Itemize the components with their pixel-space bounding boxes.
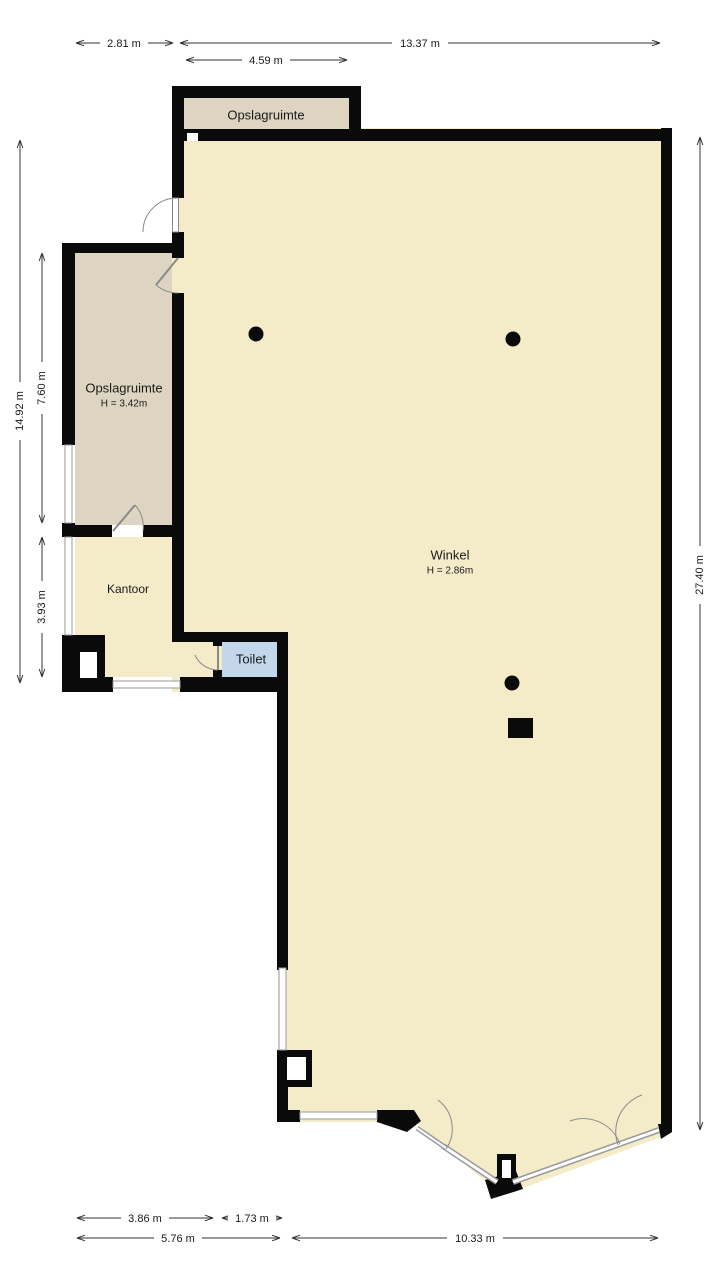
dimension-label: 10.33 m — [455, 1233, 495, 1245]
wall-outer-left-upper — [62, 243, 75, 445]
toproom-notch — [187, 133, 198, 141]
room-label-storage-top: Opslagruimte — [227, 107, 304, 122]
door-arc-exterior-left — [143, 198, 177, 232]
wall-winkel-top — [172, 129, 672, 141]
wall-storage-bottom-right — [143, 525, 184, 537]
dimension-label: 1.73 m — [235, 1213, 269, 1225]
wall-toilet-right — [277, 632, 288, 692]
window-kantoor-bottom — [113, 681, 180, 688]
room-label-kantoor: Kantoor — [107, 582, 149, 596]
window-winkel-bottom — [300, 1112, 377, 1119]
dimension-label: 5.76 m — [161, 1233, 195, 1245]
wall-kantoor-bottom-left — [62, 677, 113, 692]
dimension-label: 3.86 m — [128, 1213, 162, 1225]
dimension-label: 7.60 m — [36, 371, 48, 405]
column-square — [508, 718, 533, 738]
window-winkel-left — [279, 968, 286, 1050]
pier-inset — [287, 1057, 306, 1080]
room-fills — [75, 98, 672, 1191]
wall-left-shared — [172, 293, 184, 632]
room-label-storage-left-height: H = 3.42m — [101, 399, 147, 410]
dimension-label: 4.59 m — [249, 55, 283, 67]
wall-winkel-bottom-corner — [278, 1110, 300, 1122]
dimension-label: 2.81 m — [107, 38, 141, 50]
dimension-label: 13.37 m — [400, 38, 440, 50]
column-dot — [249, 327, 264, 342]
wall-kantoor-bottom-right — [180, 677, 288, 692]
window-storage-left — [65, 445, 72, 523]
window-kantoor-left — [65, 537, 72, 635]
room-label-winkel-height: H = 2.86m — [427, 566, 473, 577]
wall-toproom-top — [172, 86, 361, 98]
room-label-storage-left: Opslagruimte — [85, 380, 162, 395]
entry-post-inset — [502, 1160, 511, 1178]
wall-outer-right — [661, 128, 672, 1131]
wall-storage-top — [62, 243, 184, 253]
floorplan-canvas: Opslagruimte Opslagruimte H = 3.42m Kant… — [0, 0, 720, 1280]
floorplan-page: Opslagruimte Opslagruimte H = 3.42m Kant… — [0, 0, 720, 1280]
wall-left-upper — [172, 86, 184, 198]
column-dot — [506, 332, 521, 347]
kantoor-floor-alcove — [184, 642, 215, 677]
wall-toilet-door-stub-bottom — [213, 670, 222, 684]
wall-winkel-left-lower-a — [277, 692, 288, 970]
wall-winkel-bottom-right-cap — [377, 1110, 421, 1132]
dimension-label: 27.40 m — [694, 555, 706, 595]
wall-toproom-right — [349, 86, 361, 131]
room-label-winkel: Winkel — [430, 547, 469, 562]
room-label-toilet: Toilet — [236, 651, 267, 666]
dimension-label: 14.92 m — [14, 391, 26, 431]
dimension-label: 3.93 m — [36, 590, 48, 624]
column-dot — [505, 676, 520, 691]
wall-storage-bottom-left — [62, 525, 112, 537]
door-leaf-exterior-left — [173, 198, 179, 232]
wall-toilet-top — [172, 632, 288, 642]
wall-toilet-door-stub-top — [213, 632, 222, 646]
kantoor-corner-inset — [80, 652, 97, 678]
